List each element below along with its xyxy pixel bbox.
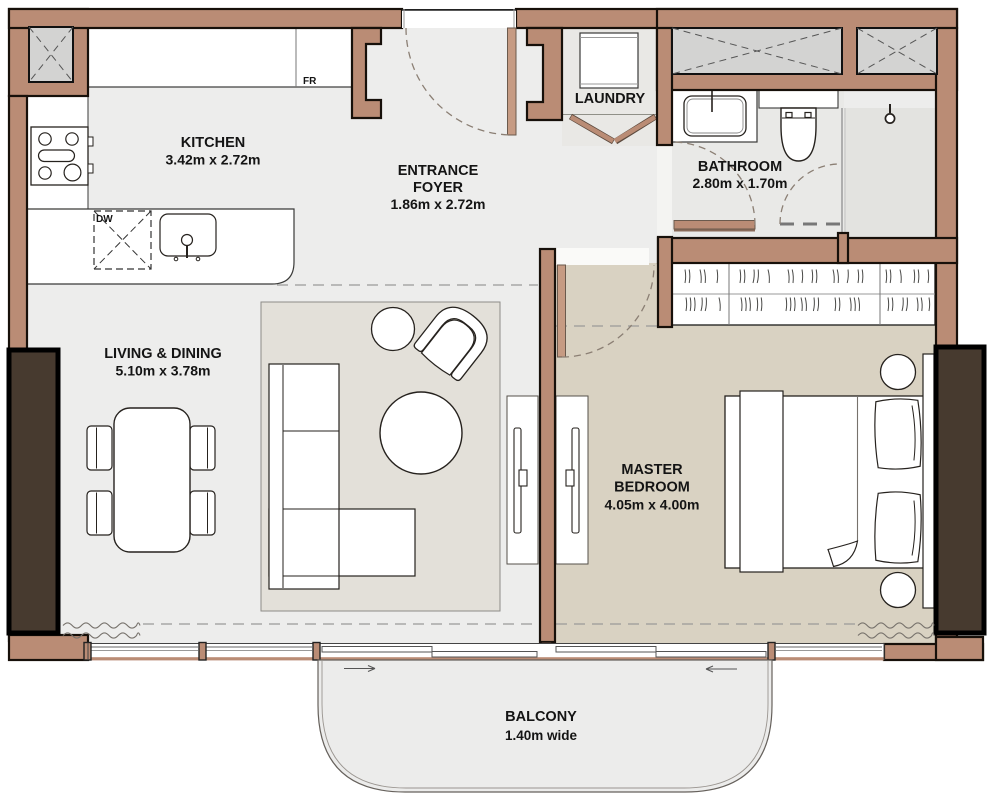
svg-text:1.40m wide: 1.40m wide — [505, 728, 578, 743]
svg-text:LAUNDRY: LAUNDRY — [575, 91, 646, 107]
svg-text:5.10m x 3.78m: 5.10m x 3.78m — [116, 363, 211, 379]
svg-text:DW: DW — [96, 214, 113, 225]
svg-text:1.86m x 2.72m: 1.86m x 2.72m — [391, 196, 486, 212]
svg-text:3.42m x 2.72m: 3.42m x 2.72m — [166, 152, 261, 168]
svg-text:LIVING & DINING: LIVING & DINING — [104, 346, 222, 362]
svg-text:BEDROOM: BEDROOM — [614, 480, 690, 496]
svg-text:KITCHEN: KITCHEN — [181, 135, 245, 151]
svg-text:4.05m x 4.00m: 4.05m x 4.00m — [605, 497, 700, 513]
svg-text:BALCONY: BALCONY — [505, 709, 577, 725]
svg-text:MASTER: MASTER — [621, 462, 683, 478]
svg-text:FOYER: FOYER — [413, 180, 463, 196]
svg-text:ENTRANCE: ENTRANCE — [398, 163, 479, 179]
svg-text:BATHROOM: BATHROOM — [698, 159, 782, 175]
svg-text:2.80m x 1.70m: 2.80m x 1.70m — [693, 175, 788, 191]
svg-text:FR: FR — [303, 76, 317, 87]
